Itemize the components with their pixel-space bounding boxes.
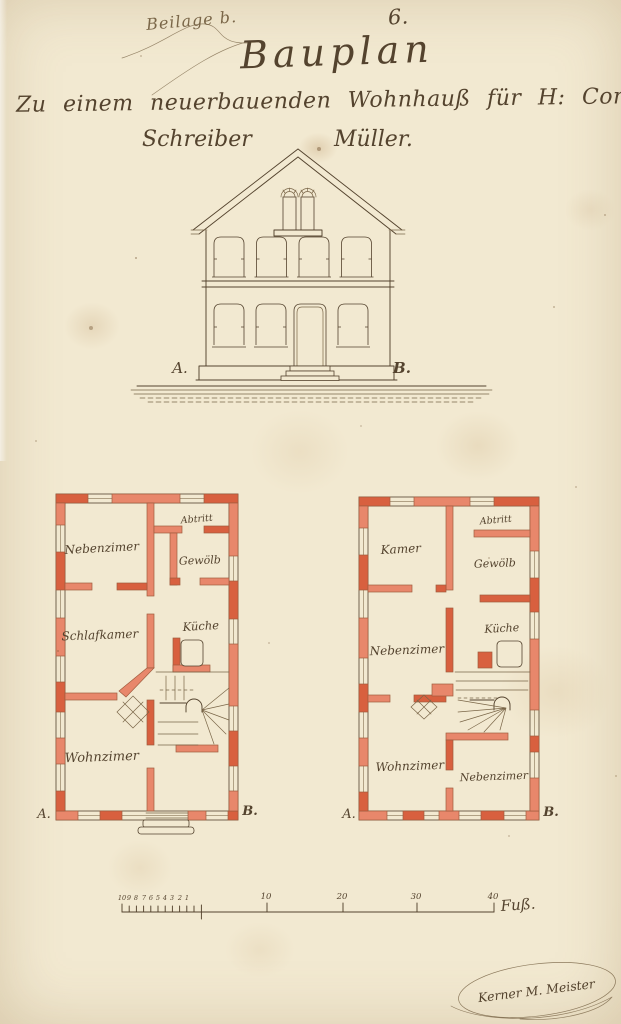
- page-title: Bauplan: [239, 27, 434, 78]
- annotation-beilage: Beilage b.: [145, 7, 237, 34]
- scale-major-labels: 10 20 30 40: [261, 892, 499, 902]
- room-label-nebenzimmer: Nebenzimer: [368, 642, 445, 659]
- foxing-specks: [0, 0, 2, 2]
- chimney-flue-symbol: [117, 696, 149, 728]
- svg-text:6: 6: [149, 894, 153, 902]
- entry-steps: [138, 813, 194, 834]
- entrance-steps: [281, 366, 339, 381]
- signature-oval: [455, 955, 618, 1024]
- room-label-schlafkammer: Schlafkamer: [61, 627, 139, 644]
- page-number: 6.: [387, 4, 409, 29]
- kitchen-oven: [497, 641, 522, 667]
- signature-block: Kerner M. Meister: [451, 955, 619, 1024]
- floor-plan-left: Nebenzimer Abtritt Gewölb Schlafkamer Kü…: [36, 494, 258, 834]
- svg-text:7: 7: [142, 894, 147, 902]
- chimney-flue-symbol: [411, 695, 437, 719]
- staircase: [156, 672, 229, 745]
- scale-minor-labels: 10 9 8 7 6 5 4 3 2 1: [118, 894, 189, 902]
- room-label-kueche: Küche: [181, 618, 219, 634]
- svg-text:4: 4: [162, 894, 167, 902]
- room-label-abtritt: Abtritt: [179, 513, 213, 527]
- wall-outlines: [359, 497, 539, 820]
- room-labels: Kamer Abtritt Gewölb Nebenzimer Küche Wo…: [341, 514, 559, 822]
- svg-text:30: 30: [411, 892, 422, 902]
- svg-text:5: 5: [156, 894, 160, 902]
- entrance-door: [294, 304, 326, 366]
- subtitle-mueller: Müller.: [334, 127, 413, 152]
- staircase: [455, 672, 530, 732]
- room-label-wohnzimmer: Wohnzimer: [64, 749, 140, 767]
- scale-bar: 10 9 8 7 6 5 4 3 2 1 10 20 30 40 Fuß.: [118, 892, 536, 919]
- pen-flourishes: [122, 24, 258, 95]
- wall-outlines: [56, 494, 238, 820]
- plan-marker-b: B.: [542, 805, 559, 820]
- room-label-gewoelb: Gewölb: [179, 553, 221, 567]
- room-label-nebenzimmer: Nebenzimer: [63, 539, 140, 557]
- svg-text:9: 9: [127, 894, 131, 902]
- architectural-drawing: A. B.: [0, 0, 621, 1024]
- house-elevation: A. B.: [131, 149, 492, 402]
- scale-unit-label: Fuß.: [499, 895, 536, 915]
- upper-floor: [202, 231, 394, 366]
- elevation-marker-b: B.: [392, 359, 411, 377]
- subtitle-line1: Zu einem neuerbauenden Wohnhauß für H: C…: [16, 83, 621, 118]
- lower-floor: [212, 304, 370, 366]
- svg-text:40: 40: [487, 892, 499, 902]
- room-label-kueche: Küche: [483, 621, 520, 636]
- elevation-marker-a: A.: [170, 359, 188, 377]
- plan-marker-a: A.: [341, 807, 356, 822]
- paper-stains: [0, 0, 621, 1024]
- room-label-wohnzimmer: Wohnzimer: [375, 758, 445, 774]
- plan-marker-a: A.: [36, 807, 51, 822]
- plinth: [196, 366, 397, 380]
- svg-text:10: 10: [118, 894, 126, 902]
- floor-plan-right: Kamer Abtritt Gewölb Nebenzimer Küche Wo…: [341, 497, 559, 822]
- masonry-walls: [359, 497, 539, 820]
- plan-marker-b: B.: [241, 804, 258, 819]
- ground-hatching: [131, 386, 492, 402]
- kitchen-oven: [181, 640, 203, 666]
- drawing-sheet: A. B.: [0, 0, 621, 1024]
- signature-flourish: [451, 997, 612, 1020]
- svg-text:8: 8: [134, 894, 138, 902]
- scan-edge: [0, 0, 7, 461]
- masonry-walls: [56, 494, 238, 820]
- roof: [191, 149, 405, 234]
- svg-text:1: 1: [185, 894, 189, 902]
- room-labels: Nebenzimer Abtritt Gewölb Schlafkamer Kü…: [36, 513, 258, 822]
- room-label-nebenzimmer-2: Nebenzimer: [459, 769, 529, 784]
- room-label-gewoelb: Gewölb: [474, 556, 516, 570]
- svg-text:2: 2: [177, 894, 182, 902]
- signature-text: Kerner M. Meister: [476, 976, 596, 1005]
- svg-text:10: 10: [261, 892, 272, 902]
- room-label-kammer: Kamer: [379, 541, 422, 557]
- subtitle-schreiber: Schreiber: [142, 127, 252, 152]
- gable-twin-window: [274, 188, 322, 236]
- room-label-abtritt: Abtritt: [478, 514, 512, 528]
- svg-text:20: 20: [336, 892, 348, 902]
- svg-text:3: 3: [170, 894, 174, 902]
